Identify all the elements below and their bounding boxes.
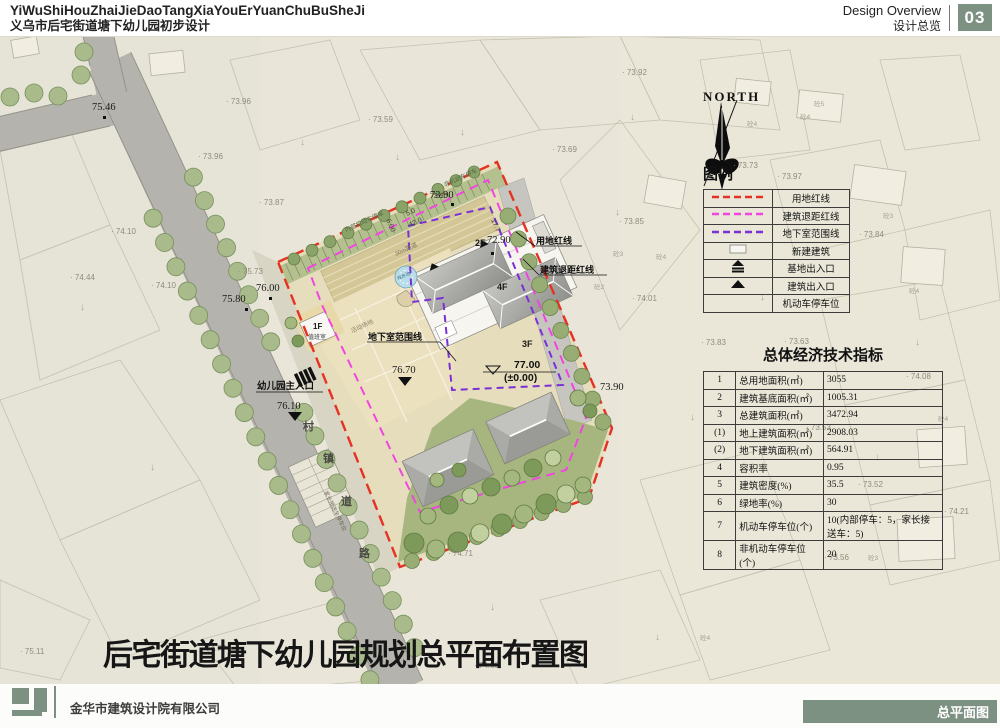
tree bbox=[262, 333, 280, 351]
tree bbox=[156, 233, 174, 251]
bg-spot-level: · 73.59 bbox=[368, 115, 393, 124]
bg-spot-level: · 74.01 bbox=[632, 294, 657, 303]
indicator-row: (2) 地下建筑面积(㎡) 564.91 bbox=[704, 442, 943, 460]
flow-arrow-icon: ↓ bbox=[630, 112, 635, 123]
legend-row-label: 新建建筑 bbox=[773, 242, 850, 260]
tree bbox=[575, 477, 591, 493]
legend-row: 地下室范围线 bbox=[704, 225, 850, 243]
flow-arrow-icon: ↓ bbox=[150, 462, 155, 473]
indicator-row: 2 建筑基底面积(㎡) 1005.31 bbox=[704, 389, 943, 407]
tree bbox=[328, 474, 346, 492]
indicator-index: (2) bbox=[704, 442, 736, 460]
indicator-value: 35.5 bbox=[824, 477, 943, 495]
road-name-char: 村 bbox=[303, 419, 314, 433]
sheet-header: YiWuShiHouZhaiJieDaoTangXiaYouErYuanChuB… bbox=[0, 0, 1000, 37]
flow-arrow-icon: ↓ bbox=[490, 602, 495, 613]
indicator-row: 1 总用地面积(㎡) 3055 bbox=[704, 372, 943, 390]
indicator-row: 7 机动车停车位(个) 10(内部停车：5，家长接送车：5) bbox=[704, 512, 943, 541]
legend-panel: 图例 用地红线 建筑退距红线 地下室范围线 新建建筑 基地出入口 建筑出入口 机… bbox=[703, 163, 850, 313]
legend-title: 图例 bbox=[703, 163, 850, 184]
annotation-label: 2F bbox=[475, 238, 486, 248]
tree bbox=[430, 473, 444, 487]
indicator-row: 8 非机动车停车位(个) 20 bbox=[704, 541, 943, 570]
bg-spot-level: · 74.10 bbox=[111, 227, 136, 236]
annotation-label: 地下室范围线 bbox=[368, 331, 422, 342]
sheet-label-bar: 总平面图 bbox=[803, 700, 997, 723]
tree bbox=[25, 84, 43, 102]
annotation-label: NORTH bbox=[703, 89, 760, 104]
indicator-value: 3055 bbox=[824, 372, 943, 390]
indicator-name: 绿地率(%) bbox=[736, 494, 824, 512]
tree bbox=[178, 282, 196, 300]
annotation-label: 77.00 bbox=[514, 359, 540, 371]
bg-spot-level: · 74.21 bbox=[944, 507, 969, 516]
bg-parcel-mark: 砼4 bbox=[700, 633, 711, 642]
sheet-label: 总平面图 bbox=[937, 702, 989, 721]
bg-parcel-mark: 砼5 bbox=[814, 99, 825, 108]
tree bbox=[1, 88, 19, 106]
indicator-value: 30 bbox=[824, 494, 943, 512]
sheet-footer: 金华市建筑设计院有限公司 总平面图 bbox=[0, 684, 1000, 728]
tree bbox=[595, 414, 611, 430]
bg-parcel-mark: 砼3 bbox=[613, 249, 624, 258]
tree bbox=[532, 277, 548, 293]
bg-parcel-mark: 砼4 bbox=[747, 119, 758, 128]
flow-arrow-icon: ↓ bbox=[460, 127, 465, 138]
legend-row: 机动车停车位 bbox=[704, 295, 850, 313]
company-logo bbox=[12, 686, 62, 718]
flow-arrow-icon: ↓ bbox=[80, 302, 85, 313]
tree bbox=[511, 231, 527, 247]
indicators-table: 1 总用地面积(㎡) 30552 建筑基底面积(㎡) 1005.313 总建筑面… bbox=[703, 371, 943, 570]
indicator-value: 2908.03 bbox=[824, 424, 943, 442]
annotation-label: 值班室 bbox=[308, 333, 326, 341]
annotation-label: 建筑退距红线 bbox=[540, 264, 594, 275]
bg-spot-level: · 73.69 bbox=[552, 145, 577, 154]
tree bbox=[524, 459, 542, 477]
site-entrance-icon bbox=[704, 260, 773, 278]
page-number-badge: 03 bbox=[958, 4, 992, 31]
project-title-cn: 义乌市后宅街道塘下幼儿园初步设计 bbox=[10, 19, 365, 33]
road-name-char: 道 bbox=[341, 494, 352, 508]
tree bbox=[304, 549, 322, 567]
tree bbox=[224, 379, 242, 397]
indicator-value: 20 bbox=[824, 541, 943, 570]
indicator-value: 1005.31 bbox=[824, 389, 943, 407]
tree bbox=[414, 192, 426, 204]
bg-spot-level: · 73.84 bbox=[859, 230, 884, 239]
road-name-char: 镇 bbox=[323, 451, 334, 465]
indicator-name: 非机动车停车位(个) bbox=[736, 541, 824, 570]
indicator-value: 3472.94 bbox=[824, 407, 943, 425]
legend-table: 用地红线 建筑退距红线 地下室范围线 新建建筑 基地出入口 建筑出入口 机动车停… bbox=[703, 189, 850, 313]
legend-row-label: 用地红线 bbox=[773, 190, 850, 208]
annotation-label: 幼儿园主入口 bbox=[257, 380, 314, 392]
indicator-name: 建筑基底面积(㎡) bbox=[736, 389, 824, 407]
legend-row: 建筑退距红线 bbox=[704, 207, 850, 225]
tree bbox=[306, 244, 318, 256]
tree bbox=[251, 309, 269, 327]
tree bbox=[536, 494, 556, 514]
indicator-row: 4 容积率 0.95 bbox=[704, 459, 943, 477]
bg-spot-level: · 73.85 bbox=[619, 217, 644, 226]
tree bbox=[521, 254, 537, 270]
indicator-name: 地上建筑面积(㎡) bbox=[736, 424, 824, 442]
bg-parcel-mark: 砼4 bbox=[909, 286, 920, 295]
bg-spot-level: · 75.73 bbox=[238, 267, 263, 276]
spot-level: 72.90 bbox=[487, 235, 511, 246]
tree bbox=[420, 508, 436, 524]
drawing-title: 后宅街道塘下幼儿园规划总平面布置图 bbox=[103, 630, 588, 674]
indicator-row: 6 绿地率(%) 30 bbox=[704, 494, 943, 512]
tree bbox=[553, 322, 569, 338]
indicator-index: 8 bbox=[704, 541, 736, 570]
indicator-index: (1) bbox=[704, 424, 736, 442]
annotation-label: 4F bbox=[497, 282, 508, 292]
spot-level: 75.80 bbox=[222, 294, 246, 305]
indicator-name: 容积率 bbox=[736, 459, 824, 477]
spot-level: 75.46 bbox=[92, 102, 116, 113]
section-title-cn: 设计总览 bbox=[843, 19, 941, 33]
bg-spot-level: · 73.96 bbox=[198, 152, 223, 161]
tree bbox=[207, 215, 225, 233]
indicator-value: 10(内部停车：5，家长接送车：5) bbox=[824, 512, 943, 541]
tree bbox=[184, 168, 202, 186]
tree bbox=[563, 345, 579, 361]
legend-row: 建筑出入口 bbox=[704, 277, 850, 295]
indicator-index: 7 bbox=[704, 512, 736, 541]
indicator-index: 4 bbox=[704, 459, 736, 477]
indicator-name: 建筑密度(%) bbox=[736, 477, 824, 495]
legend-row-label: 建筑退距红线 bbox=[773, 207, 850, 225]
indicator-row: 3 总建筑面积(㎡) 3472.94 bbox=[704, 407, 943, 425]
indicator-index: 6 bbox=[704, 494, 736, 512]
flow-arrow-icon: ↓ bbox=[395, 152, 400, 163]
tree bbox=[195, 192, 213, 210]
annotation-label: (±0.00) bbox=[504, 372, 537, 384]
indicators-title: 总体经济技术指标 bbox=[703, 344, 943, 365]
tree bbox=[482, 478, 500, 496]
tree bbox=[235, 404, 253, 422]
tree bbox=[504, 470, 520, 486]
bg-parcel-mark: 砼3 bbox=[883, 211, 894, 220]
legend-row-label: 建筑出入口 bbox=[773, 277, 850, 295]
flow-arrow-icon: ↓ bbox=[615, 207, 620, 218]
indicator-index: 5 bbox=[704, 477, 736, 495]
bg-spot-level: · 73.87 bbox=[259, 198, 284, 207]
building-entrance-icon bbox=[704, 277, 773, 295]
legend-row-label: 基地出入口 bbox=[773, 260, 850, 278]
tree bbox=[190, 306, 208, 324]
legend-row: 新建建筑 bbox=[704, 242, 850, 260]
tree bbox=[372, 568, 390, 586]
tree bbox=[72, 66, 90, 84]
indicator-name: 机动车停车位(个) bbox=[736, 512, 824, 541]
tree bbox=[49, 87, 67, 105]
spot-level: 73.90 bbox=[600, 382, 624, 393]
sheet-page: · 73.96· 73.96· 73.87· 74.10· 74.44· 74.… bbox=[0, 0, 1000, 728]
tree bbox=[292, 335, 304, 347]
annotation-label: 3F bbox=[522, 339, 533, 349]
road-name-char: 路 bbox=[359, 546, 371, 560]
tree bbox=[350, 521, 368, 539]
tree bbox=[201, 331, 219, 349]
flow-arrow-icon: ↓ bbox=[205, 327, 210, 338]
tree bbox=[258, 452, 276, 470]
company-name: 金华市建筑设计院有限公司 bbox=[70, 698, 220, 717]
purple-dash-icon bbox=[704, 225, 773, 243]
tree bbox=[383, 592, 401, 610]
tree bbox=[213, 355, 231, 373]
bg-parcel-mark: 砼2 bbox=[594, 282, 605, 291]
tree bbox=[557, 485, 575, 503]
tree bbox=[492, 514, 512, 534]
spot-level: 76.70 bbox=[392, 365, 416, 376]
tree bbox=[405, 554, 420, 569]
tree bbox=[292, 525, 310, 543]
tree bbox=[324, 236, 336, 248]
indicator-name: 地下建筑面积(㎡) bbox=[736, 442, 824, 460]
legend-row-label: 机动车停车位 bbox=[773, 295, 850, 313]
tree bbox=[75, 43, 93, 61]
spot-level: 76.10 bbox=[277, 401, 301, 412]
tree bbox=[500, 208, 516, 224]
bg-spot-level: · 73.92 bbox=[622, 68, 647, 77]
tree bbox=[574, 368, 590, 384]
legend-row: 用地红线 bbox=[704, 190, 850, 208]
magenta-dash-icon bbox=[704, 207, 773, 225]
bg-parcel-mark: 砼4 bbox=[656, 252, 667, 261]
indicator-index: 1 bbox=[704, 372, 736, 390]
tree bbox=[570, 390, 586, 406]
indicator-value: 0.95 bbox=[824, 459, 943, 477]
indicator-index: 2 bbox=[704, 389, 736, 407]
bg-spot-level: · 74.71 bbox=[448, 549, 473, 558]
tree bbox=[281, 501, 299, 519]
flow-arrow-icon: ↓ bbox=[300, 137, 305, 148]
indicator-row: 5 建筑密度(%) 35.5 bbox=[704, 477, 943, 495]
tree bbox=[270, 476, 288, 494]
indicator-index: 3 bbox=[704, 407, 736, 425]
tree bbox=[542, 300, 558, 316]
tree bbox=[404, 533, 424, 553]
legend-row: 基地出入口 bbox=[704, 260, 850, 278]
dimension-label: 73.90 bbox=[430, 193, 448, 200]
tree bbox=[427, 540, 445, 558]
indicator-name: 总建筑面积(㎡) bbox=[736, 407, 824, 425]
red-dash-icon bbox=[704, 190, 773, 208]
tree bbox=[144, 209, 162, 227]
tree bbox=[452, 463, 466, 477]
tree bbox=[285, 317, 297, 329]
tree bbox=[515, 505, 533, 523]
tree bbox=[545, 450, 561, 466]
tree bbox=[440, 496, 458, 514]
bg-spot-level: · 73.96 bbox=[226, 97, 251, 106]
tree bbox=[583, 404, 597, 418]
indicator-name: 总用地面积(㎡) bbox=[736, 372, 824, 390]
annotation-label: 1F bbox=[313, 322, 322, 331]
tree bbox=[218, 239, 236, 257]
flow-arrow-icon: ↓ bbox=[690, 412, 695, 423]
header-divider bbox=[949, 5, 950, 31]
indicator-value: 564.91 bbox=[824, 442, 943, 460]
legend-row-label: 地下室范围线 bbox=[773, 225, 850, 243]
indicator-row: (1) 地上建筑面积(㎡) 2908.03 bbox=[704, 424, 943, 442]
tree bbox=[167, 258, 185, 276]
tree bbox=[462, 488, 478, 504]
bg-spot-level: · 74.10 bbox=[151, 281, 176, 290]
bg-parcel-mark: 砼4 bbox=[800, 112, 811, 121]
indicators-panel: 总体经济技术指标 1 总用地面积(㎡) 30552 建筑基底面积(㎡) 1005… bbox=[703, 344, 943, 570]
tree bbox=[288, 253, 300, 265]
tree bbox=[327, 598, 345, 616]
tree bbox=[471, 524, 489, 542]
bg-spot-level: · 74.44 bbox=[70, 273, 95, 282]
bg-spot-level: · 75.11 bbox=[20, 647, 45, 656]
spot-level: 76.00 bbox=[256, 283, 280, 294]
tree bbox=[315, 574, 333, 592]
new-building-icon bbox=[704, 242, 773, 260]
flow-arrow-icon: ↓ bbox=[655, 632, 660, 643]
annotation-label: 用地红线 bbox=[535, 235, 572, 246]
parking-icon bbox=[704, 295, 773, 313]
tree bbox=[247, 428, 265, 446]
project-title-pinyin: YiWuShiHouZhaiJieDaoTangXiaYouErYuanChuB… bbox=[10, 3, 365, 19]
section-title-en: Design Overview bbox=[843, 3, 941, 19]
